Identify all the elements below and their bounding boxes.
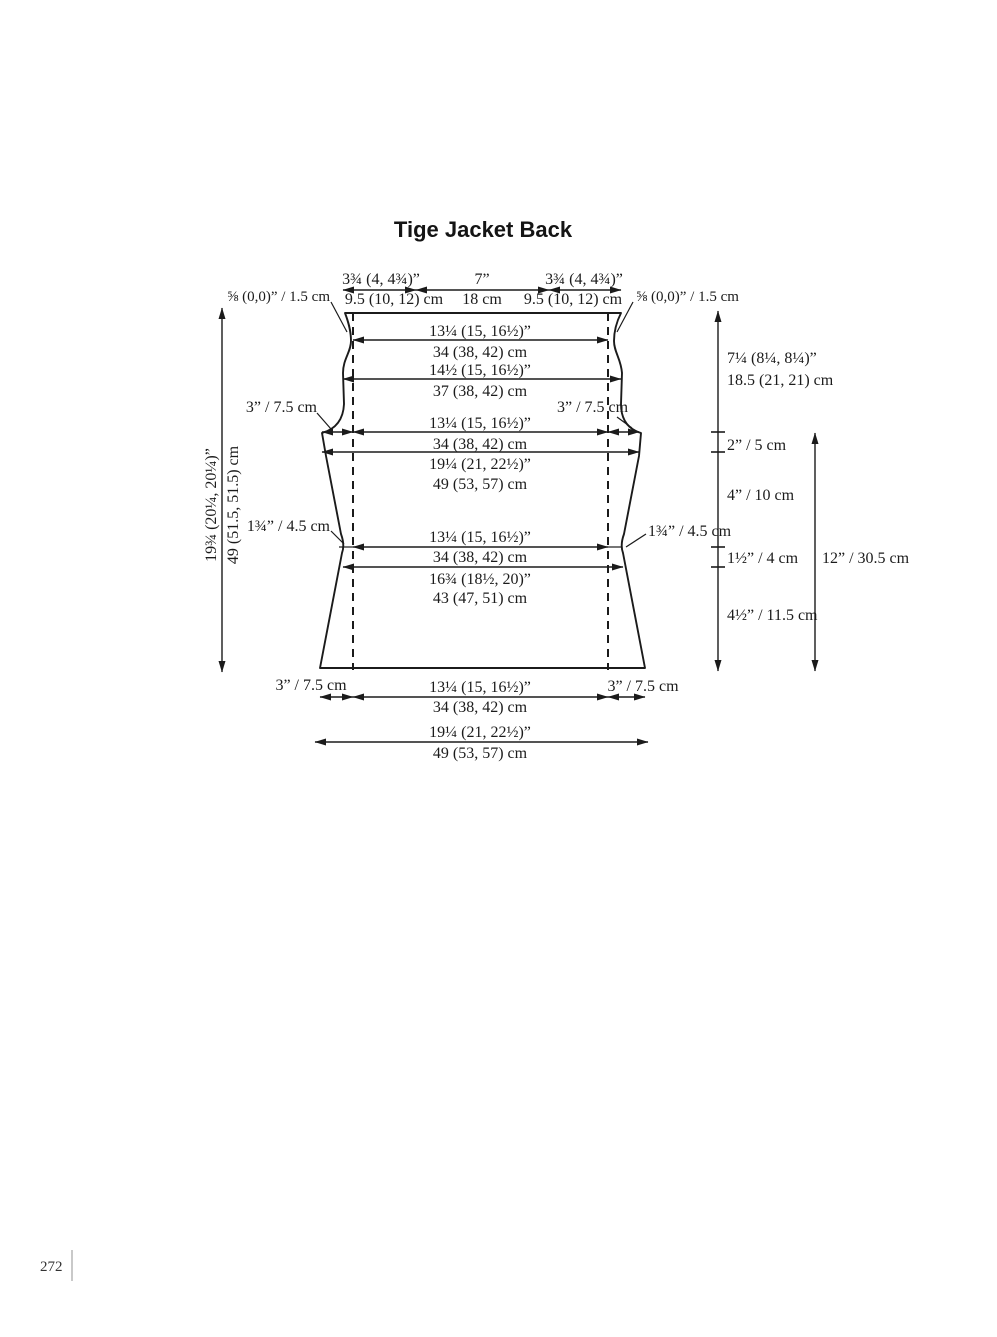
body-length-label: 12” / 30.5 cm [822, 550, 910, 567]
hem-inner-in-label: 13¼ (15, 16½)” [429, 679, 531, 696]
shoulder-left-cm-label: 9.5 (10, 12) cm [345, 291, 444, 308]
hem-inner-cm-label: 34 (38, 42) cm [433, 699, 528, 716]
shoulder-left-in-label: 3¾ (4, 4¾)” [342, 271, 420, 288]
waist-to-hem-label: 4½” / 11.5 cm [727, 607, 818, 624]
yoke-height-cm-label: 18.5 (21, 21) cm [727, 372, 834, 389]
seam-left-label: ⅝ (0,0)” / 1.5 cm [227, 289, 330, 305]
waist-inner-cm-label: 34 (38, 42) cm [433, 549, 528, 566]
armhole-notch-right-label: 3” / 7.5 cm [557, 399, 629, 416]
armhole-left-pointer [317, 413, 331, 429]
chest-to-waist-label: 4” / 10 cm [727, 487, 795, 504]
upper-width-cm-label: 37 (38, 42) cm [433, 383, 528, 400]
hem-full-in-label: 19¼ (21, 22½)” [429, 724, 531, 741]
neck-cm-label: 18 cm [462, 291, 502, 308]
chest-width-in-label: 19¼ (21, 22½)” [429, 456, 531, 473]
upper-width-in-label: 14½ (15, 16½)” [429, 362, 531, 379]
waist-inner-in-label: 13¼ (15, 16½)” [429, 529, 531, 546]
waist-right-pointer [626, 534, 646, 547]
total-height-cm-label: 49 (51.5, 51.5) cm [225, 445, 242, 564]
schematic-svg: Tige Jacket Back ⅝ (0,0)” / 1.5 cm 3¾ (4… [0, 0, 997, 1337]
hem-notch-left-label: 3” / 7.5 cm [275, 677, 347, 694]
book-page: Tige Jacket Back ⅝ (0,0)” / 1.5 cm 3¾ (4… [0, 0, 997, 1337]
cross-width-in-label: 13¼ (15, 16½)” [429, 415, 531, 432]
page-number: 272 [40, 1259, 63, 1275]
shoulder-right-in-label: 3¾ (4, 4¾)” [545, 271, 623, 288]
shoulder-right-cm-label: 9.5 (10, 12) cm [524, 291, 623, 308]
armhole-band-label: 2” / 5 cm [727, 437, 787, 454]
waist-notch-right-label: 1¾” / 4.5 cm [648, 523, 732, 540]
waist-full-cm-label: 43 (47, 51) cm [433, 590, 528, 607]
yoke-height-in-label: 7¼ (8¼, 8¼)” [727, 350, 817, 367]
hem-notch-right-label: 3” / 7.5 cm [607, 678, 679, 695]
total-height-in-label: 19¾ (20¼, 20¼)” [203, 448, 220, 562]
hem-full-cm-label: 49 (53, 57) cm [433, 745, 528, 762]
waist-full-in-label: 16¾ (18½, 20)” [429, 571, 531, 588]
neck-in-label: 7” [474, 271, 489, 288]
neck-width-in-label: 13¼ (15, 16½)” [429, 323, 531, 340]
armhole-notch-left-label: 3” / 7.5 cm [246, 399, 318, 416]
neck-width-cm-label: 34 (38, 42) cm [433, 344, 528, 361]
page-title: Tige Jacket Back [394, 217, 573, 242]
seam-right-label: ⅝ (0,0)” / 1.5 cm [636, 289, 739, 305]
chest-width-cm-label: 49 (53, 57) cm [433, 476, 528, 493]
cross-width-cm-label: 34 (38, 42) cm [433, 436, 528, 453]
waist-notch-left-label: 1¾” / 4.5 cm [247, 518, 331, 535]
waist-band-label: 1½” / 4 cm [727, 550, 799, 567]
